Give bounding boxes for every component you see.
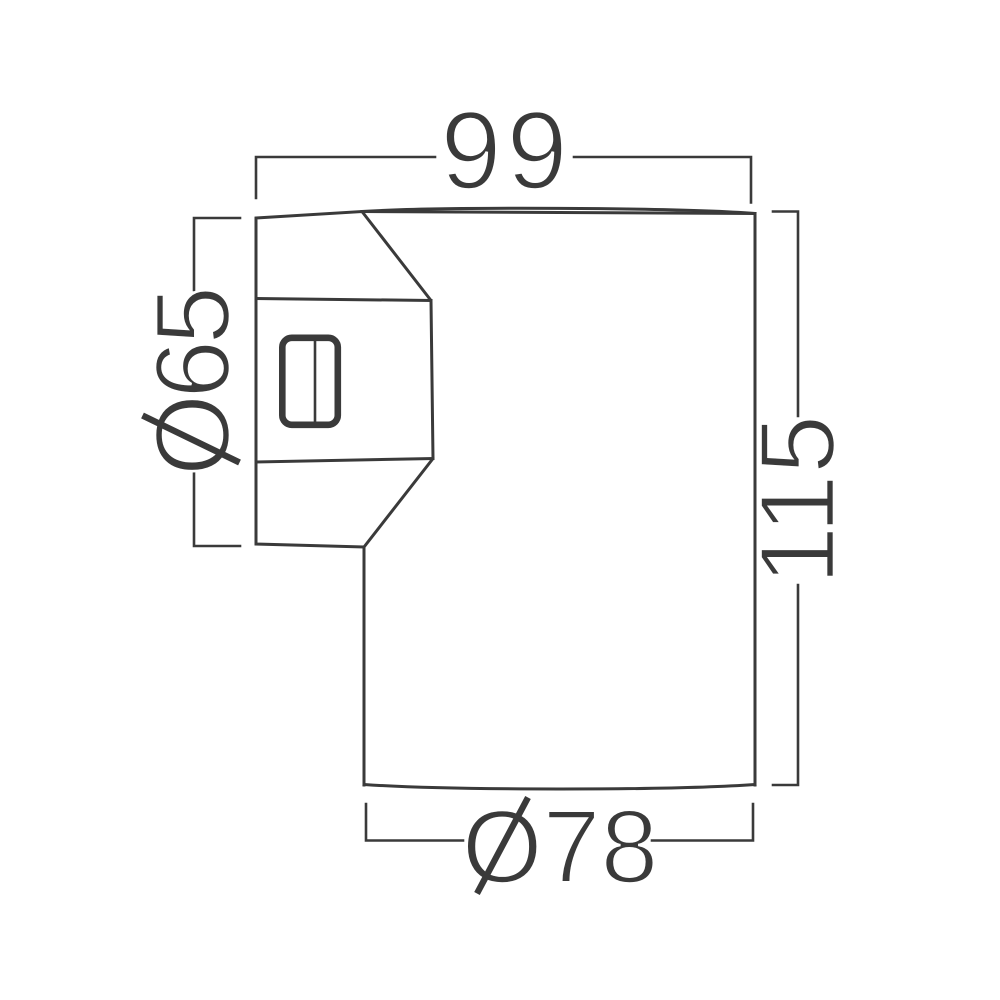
svg-text:99: 99 (440, 90, 572, 213)
svg-text:115: 115 (737, 415, 857, 586)
svg-text:O65: O65 (134, 290, 252, 476)
svg-text:O78: O78 (462, 790, 659, 906)
